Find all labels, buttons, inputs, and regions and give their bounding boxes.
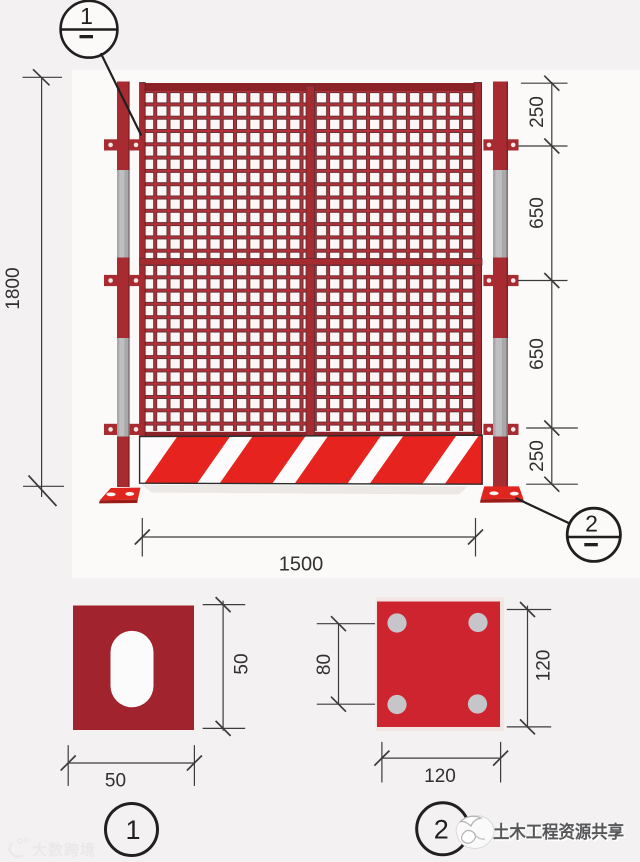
svg-text:120: 120	[534, 650, 555, 682]
svg-text:650: 650	[527, 197, 548, 229]
svg-text:250: 250	[527, 440, 548, 472]
svg-text:1500: 1500	[279, 554, 324, 576]
svg-text:土木工程资源共享: 土木工程资源共享	[493, 822, 624, 842]
svg-text:2: 2	[585, 511, 598, 537]
svg-text:1: 1	[80, 3, 93, 29]
svg-text:大数跨境: 大数跨境	[32, 841, 96, 859]
svg-text:2: 2	[434, 814, 449, 844]
svg-text:250: 250	[527, 96, 548, 128]
svg-text:650: 650	[527, 338, 548, 370]
svg-text:50: 50	[232, 653, 253, 674]
svg-text:80: 80	[314, 654, 335, 675]
svg-text:120: 120	[424, 766, 456, 787]
svg-text:1800: 1800	[3, 267, 24, 309]
svg-text:1: 1	[125, 815, 140, 845]
svg-text:50: 50	[105, 770, 126, 791]
